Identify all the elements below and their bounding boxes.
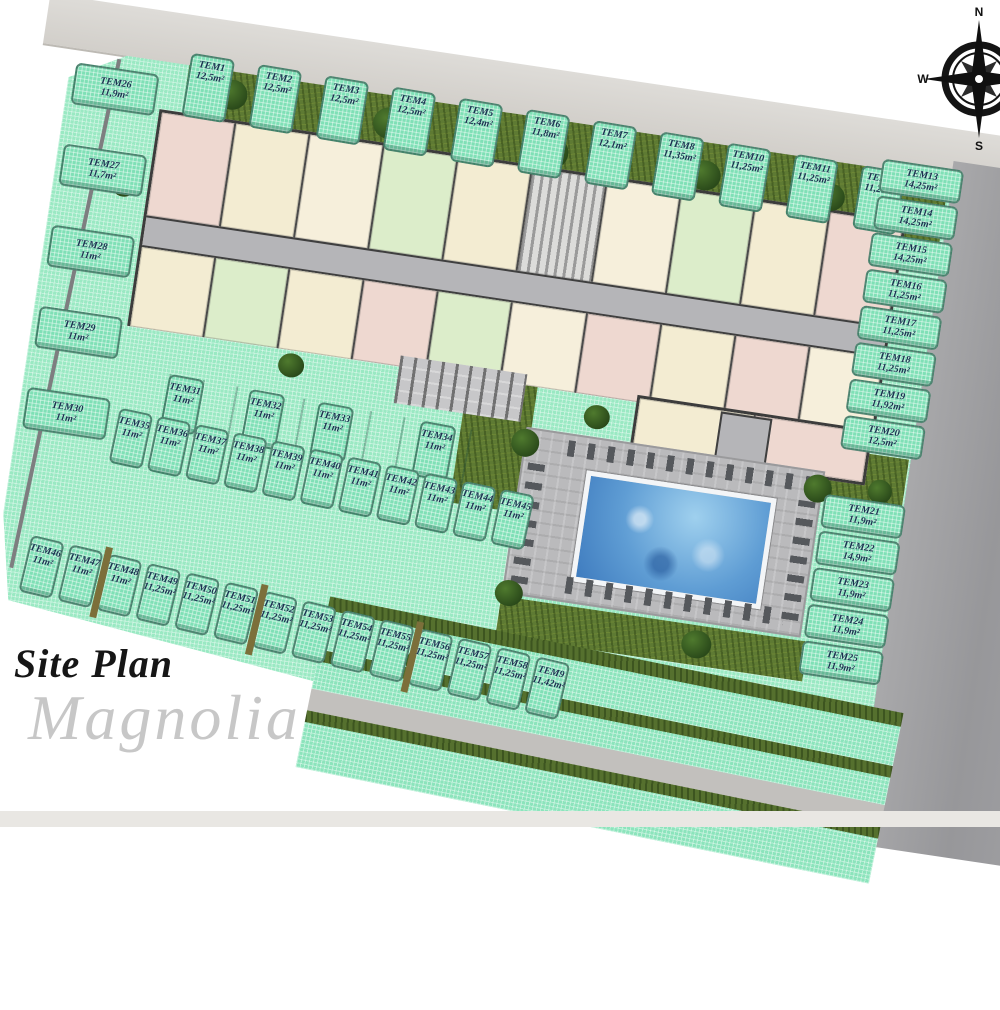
parking-spot-label: TEM2711,7m² (86, 157, 121, 183)
page-title: Site Plan (14, 640, 301, 687)
parking-spot-label: TEM1911,92m² (871, 388, 907, 414)
parking-spot: TEM4411m² (452, 481, 497, 543)
parking-spot: TEM212,5m² (248, 64, 302, 134)
parking-spot-label: TEM2611,9m² (98, 76, 133, 102)
parking-spot: TEM1011,25m² (718, 143, 772, 213)
parking-spot: TEM3011m² (22, 387, 111, 441)
parking-spot-label: TEM112,5m² (195, 60, 226, 86)
parking-spot: TEM3711m² (185, 424, 230, 486)
apartment-room (351, 280, 437, 370)
parking-spot: TEM2911m² (34, 306, 123, 360)
parking-spot-label: TEM2811m² (73, 238, 108, 264)
compass-west-label: W (917, 72, 929, 86)
parking-spot-label: TEM2311,9m² (835, 577, 870, 603)
parking-spot: TEM4311m² (414, 473, 459, 535)
parking-spot: TEM5811,25m² (485, 647, 532, 711)
parking-spot-label: TEM3011m² (49, 401, 84, 427)
parking-spot-label: TEM2411,9m² (829, 613, 864, 639)
parking-spot: TEM3611m² (147, 416, 192, 478)
parking-spot-label: TEM512,4m² (463, 105, 494, 131)
parking-spot: TEM811,35m² (651, 131, 705, 201)
compass-north-label: N (975, 5, 984, 19)
parking-spot-label: TEM2511,9m² (824, 650, 859, 676)
title-block: Site Plan Magnolia (14, 640, 301, 755)
parking-spot-label: TEM2111,9m² (846, 504, 881, 530)
parking-spot-label: TEM2911m² (61, 320, 96, 346)
parking-spot: TEM4011m² (299, 448, 344, 510)
parking-spot-label: TEM312,5m² (329, 82, 360, 108)
parking-spot-label: TEM2214,9m² (840, 540, 875, 566)
parking-spot: TEM112,5m² (181, 53, 235, 123)
parking-spot: TEM4211m² (375, 464, 420, 526)
parking-spot-label: TEM1711,25m² (882, 315, 918, 341)
parking-spot: TEM312,5m² (315, 75, 369, 145)
parking-spot: TEM5711,25m² (446, 638, 493, 702)
project-name: Magnolia (28, 681, 301, 755)
parking-spot: TEM3811m² (223, 432, 268, 494)
parking-spot-label: TEM212,5m² (262, 71, 293, 97)
parking-spot-label: TEM412,5m² (396, 94, 427, 120)
parking-spot: TEM5411,25m² (329, 609, 376, 673)
parking-spot: TEM3911m² (261, 440, 306, 502)
apartment-room (202, 258, 288, 348)
compass-center (974, 74, 984, 84)
parking-spot: TEM5011,25m² (174, 572, 221, 636)
parking-spot: TEM5611,25m² (407, 628, 454, 692)
parking-spot-label: TEM2012,5m² (866, 425, 901, 451)
page-edge-strip (0, 811, 1000, 827)
parking-spot-label: TEM712,1m² (597, 127, 628, 153)
parking-spot-label: TEM611,8m² (531, 116, 562, 142)
parking-spot: TEM2711,7m² (58, 143, 147, 197)
parking-spot: TEM2811m² (46, 225, 135, 279)
compass-rose: N W S E (916, 4, 1000, 152)
parking-spot-label: TEM1811,25m² (876, 351, 912, 377)
parking-spot: TEM412,5m² (382, 86, 436, 156)
parking-spot: TEM712,1m² (584, 120, 638, 190)
compass-south-label: S (975, 139, 983, 152)
apartment-room (574, 313, 660, 403)
parking-spot-label: TEM1611,25m² (887, 278, 923, 304)
parking-spot: TEM4111m² (337, 456, 382, 518)
parking-spot: TEM4811m² (96, 553, 143, 617)
parking-spot: TEM512,4m² (450, 98, 504, 168)
parking-spot: TEM611,8m² (517, 109, 571, 179)
parking-spot: TEM1111,25m² (785, 154, 839, 224)
apartment-room (277, 269, 363, 359)
site-plan-group: TEM112,5m² TEM212,5m² TEM312,5m² (0, 12, 1000, 1007)
apartment-room (130, 247, 214, 337)
compass-main-star (924, 20, 1000, 138)
parking-spot: TEM4911,25m² (135, 563, 182, 627)
